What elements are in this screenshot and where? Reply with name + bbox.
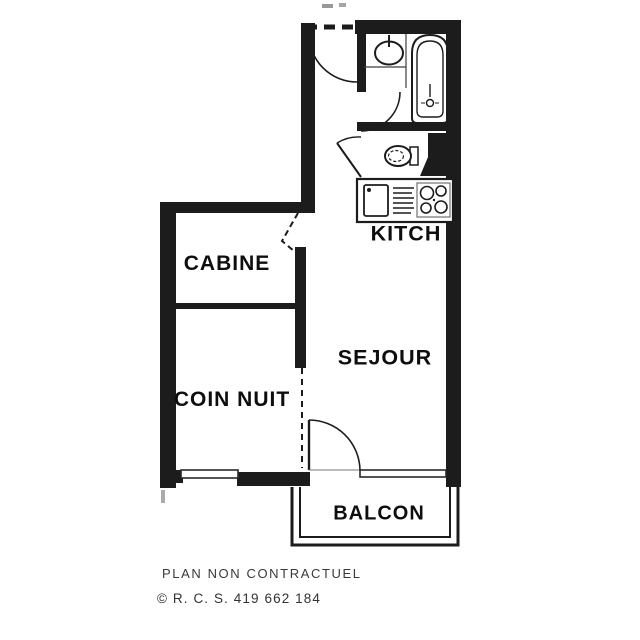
- floorplan-drawing: [0, 0, 640, 640]
- wall-bath-divider: [357, 27, 366, 92]
- cabin-folding-door: [282, 213, 298, 251]
- wall-bottom-thick: [237, 472, 310, 486]
- bathroom-fixtures: [364, 34, 452, 176]
- kitchen-fixtures: [357, 179, 453, 222]
- window-coinnuit: [181, 470, 238, 478]
- wc-dark-corner: [420, 133, 452, 176]
- glazed-bay-sejour: [360, 470, 446, 477]
- wall-cabine-coinnuit: [173, 303, 303, 309]
- kitchen-faucet-dot: [367, 188, 371, 192]
- bathtub-drain: [427, 100, 434, 107]
- footer-disclaimer: PLAN NON CONTRACTUEL: [162, 566, 362, 581]
- wall-top: [355, 20, 461, 34]
- wall-cabine-top: [160, 202, 306, 213]
- room-label-kitch: KITCH: [371, 222, 442, 247]
- room-label-cabine: CABINE: [184, 252, 271, 276]
- wall-sejour-pillar: [295, 247, 306, 368]
- entry-door-arc: [309, 34, 357, 82]
- wall-left: [160, 202, 176, 488]
- floorplan-canvas: KITCH CABINE SEJOUR COIN NUIT BALCON PLA…: [0, 0, 640, 640]
- room-label-coin-nuit: COIN NUIT: [174, 388, 290, 412]
- footer-rcs-number: © R. C. S. 419 662 184: [157, 591, 321, 606]
- bathtub-inner: [417, 41, 443, 117]
- wc-door-arc: [337, 137, 361, 143]
- windows: [181, 470, 446, 478]
- room-label-sejour: SEJOUR: [338, 346, 432, 371]
- balcony-door-arc: [309, 420, 360, 470]
- room-label-balcon: BALCON: [333, 503, 425, 526]
- wc-door-leaf: [337, 143, 361, 177]
